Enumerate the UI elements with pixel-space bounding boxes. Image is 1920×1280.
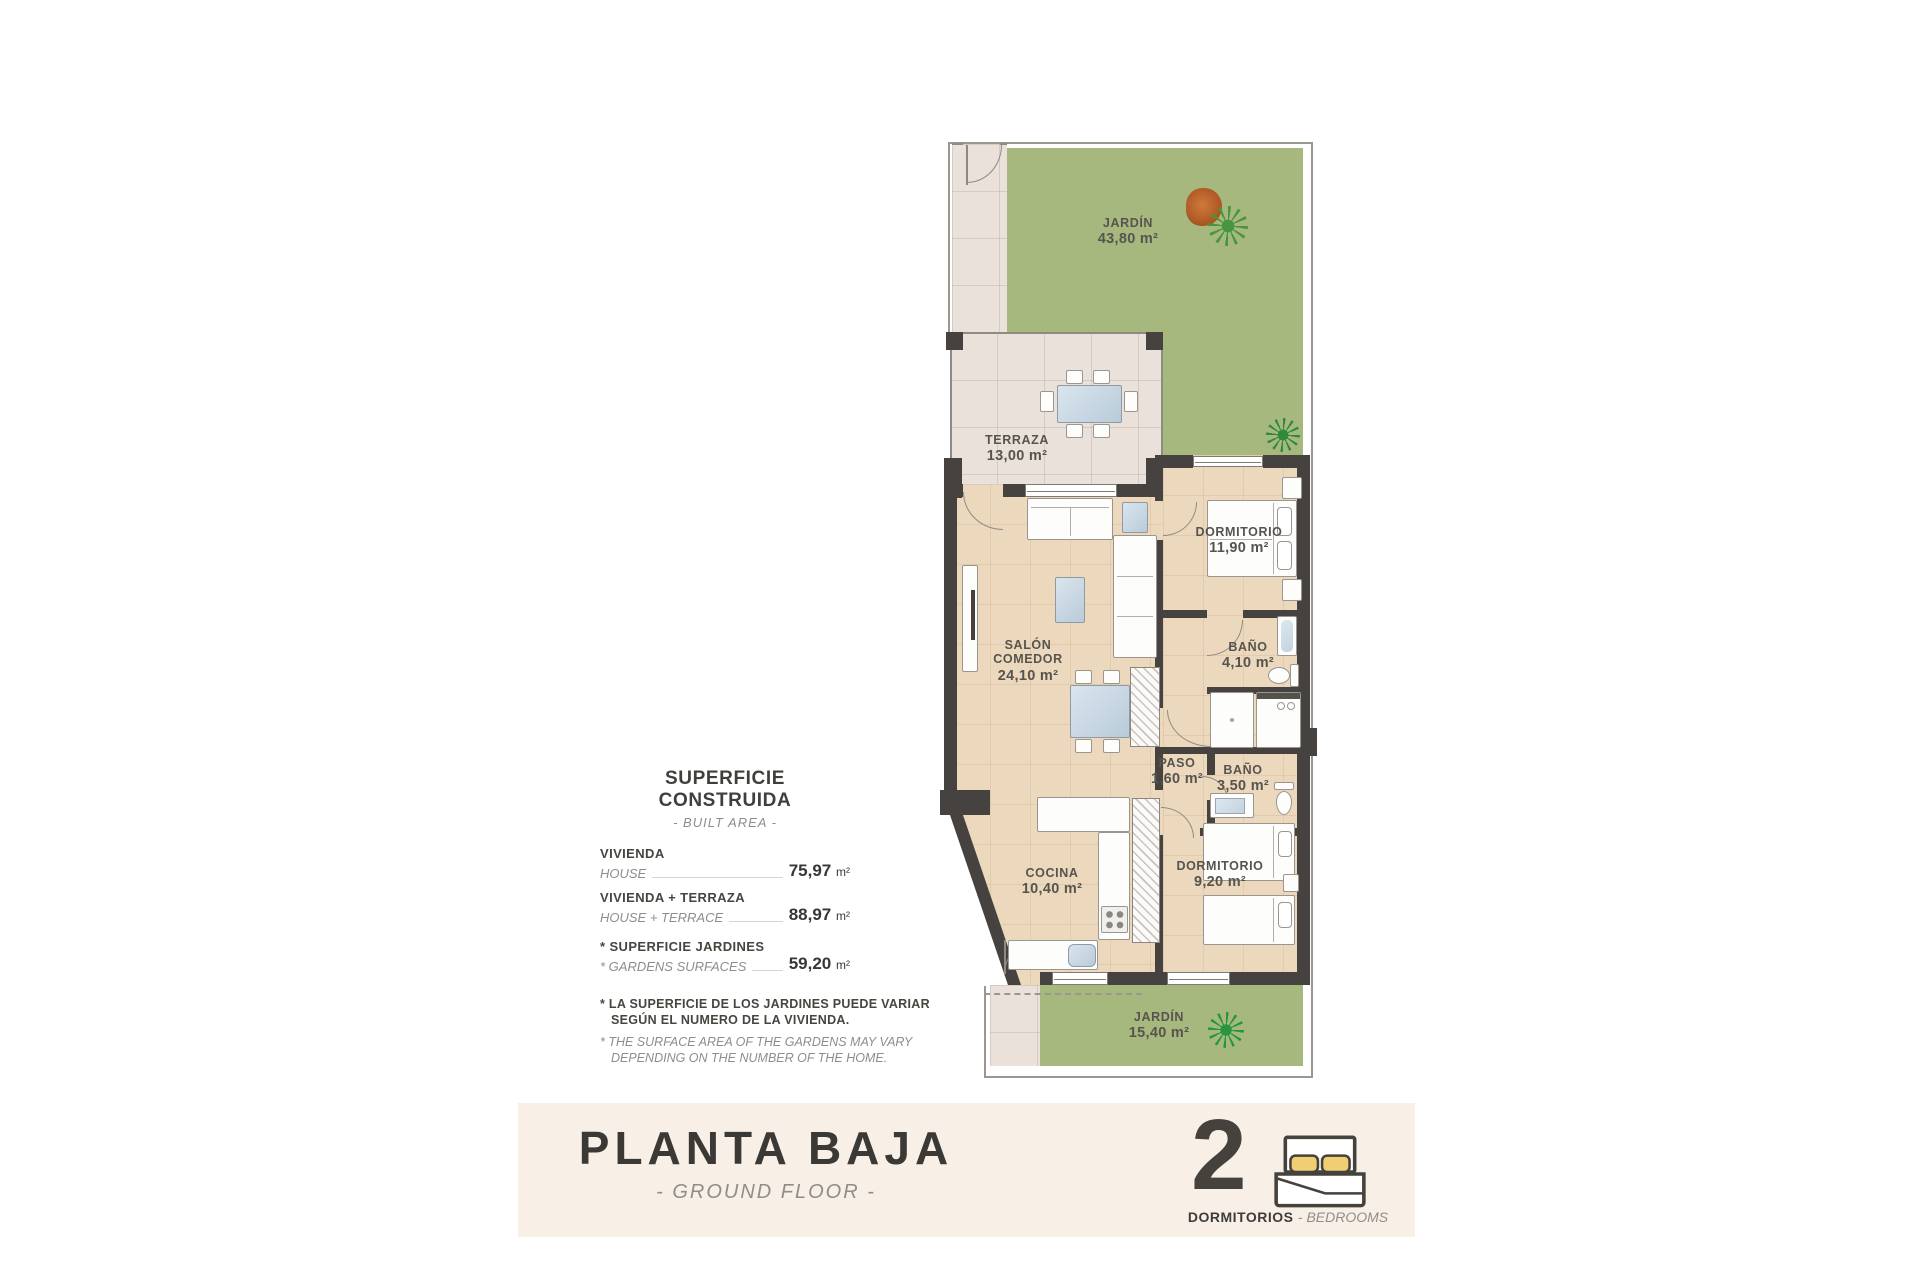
panel-title: SUPERFICIE CONSTRUIDA bbox=[600, 768, 850, 812]
plot-border-bottom bbox=[984, 1076, 1313, 1078]
kitchen-counter-top bbox=[1037, 797, 1130, 832]
terrace-chair bbox=[1093, 424, 1110, 438]
terrace-chair bbox=[1066, 370, 1083, 384]
terrace-parapet-top bbox=[950, 332, 1163, 334]
wall bbox=[1163, 610, 1207, 618]
coffee-table bbox=[1055, 577, 1085, 623]
terrace-chair bbox=[1040, 391, 1054, 412]
boundary-dashed-line bbox=[984, 993, 1142, 995]
label-bano-2: BAÑO 3,50 m² bbox=[1183, 763, 1303, 795]
terrace-chair bbox=[1124, 391, 1138, 412]
plot-border-left-low bbox=[984, 986, 986, 1078]
side-table bbox=[1122, 502, 1148, 533]
wall-spine bbox=[1155, 497, 1163, 501]
label-cocina: COCINA 10,40 m² bbox=[992, 866, 1112, 898]
wardrobe-kitchen-side bbox=[1132, 798, 1160, 943]
pillow bbox=[1278, 902, 1292, 928]
palm-icon bbox=[1208, 206, 1248, 246]
dining-table bbox=[1070, 685, 1130, 738]
wall-fin bbox=[940, 790, 990, 815]
surface-row-house: VIVIENDA HOUSE 75,97 m² bbox=[600, 846, 850, 881]
bed-icon bbox=[1269, 1135, 1371, 1211]
palm-icon bbox=[1266, 418, 1300, 452]
built-area-panel: SUPERFICIE CONSTRUIDA - BUILT AREA - VIV… bbox=[600, 768, 850, 983]
label-jardin-top: JARDÍN 43,80 m² bbox=[1068, 216, 1188, 248]
label-dormitorio-2: DORMITORIO 9,20 m² bbox=[1160, 859, 1280, 891]
footnotes: * LA SUPERFICIE DE LOS JARDINES PUEDE VA… bbox=[600, 996, 950, 1066]
terrace-table bbox=[1057, 385, 1122, 423]
surface-row-gardens: * SUPERFICIE JARDINES * GARDENS SURFACES… bbox=[600, 939, 850, 974]
label-bano-1: BAÑO 4,10 m² bbox=[1188, 640, 1308, 672]
floor-title: PLANTA BAJA bbox=[546, 1121, 986, 1175]
stove bbox=[1101, 906, 1128, 933]
leader-line bbox=[752, 970, 782, 971]
footnote-es: * LA SUPERFICIE DE LOS JARDINES PUEDE VA… bbox=[600, 996, 950, 1029]
chaise-sofa bbox=[1113, 535, 1157, 658]
window-bedroom-2 bbox=[1167, 972, 1230, 985]
pillow bbox=[1278, 831, 1292, 857]
walkway-patch-bottom bbox=[990, 985, 1040, 1066]
sofa bbox=[1027, 498, 1113, 540]
dining-chair bbox=[1075, 739, 1092, 753]
dining-chair bbox=[1103, 739, 1120, 753]
terrace-parapet-right bbox=[1161, 332, 1163, 456]
floor-title-block: PLANTA BAJA - GROUND FLOOR - bbox=[546, 1121, 986, 1204]
label-dormitorio-1: DORMITORIO 11,90 m² bbox=[1179, 525, 1299, 557]
wall bbox=[1003, 484, 1025, 497]
floor-subtitle: - GROUND FLOOR - bbox=[546, 1181, 986, 1204]
nightstand bbox=[1282, 477, 1302, 499]
terrace-post bbox=[946, 332, 963, 350]
wall bbox=[1040, 972, 1052, 985]
bedrooms-count: 2 bbox=[1191, 1109, 1247, 1201]
gate-wall bbox=[952, 143, 963, 145]
nightstand bbox=[1283, 874, 1299, 892]
vanity-double bbox=[1256, 692, 1301, 748]
brochure-page: JARDÍN 43,80 m² TERRAZA 13,00 m² DORMITO… bbox=[0, 0, 1920, 1280]
plot-border-left bbox=[948, 142, 950, 334]
wall bbox=[1230, 972, 1303, 985]
nightstand bbox=[1282, 579, 1302, 601]
label-terraza: TERRAZA 13,00 m² bbox=[957, 433, 1077, 465]
vanity bbox=[1210, 793, 1254, 818]
leader-line bbox=[652, 877, 782, 878]
window-kitchen bbox=[1052, 972, 1108, 985]
shower bbox=[1210, 692, 1254, 748]
wall bbox=[1117, 484, 1163, 497]
terrace-chair bbox=[1093, 370, 1110, 384]
wall-left bbox=[944, 484, 957, 815]
plot-border-right bbox=[1311, 142, 1313, 1078]
window-bedroom-1 bbox=[1193, 456, 1263, 467]
kitchen-sink bbox=[1068, 944, 1096, 967]
wall bbox=[1108, 972, 1163, 985]
wall bbox=[1155, 455, 1193, 468]
tv bbox=[971, 590, 975, 640]
footer: PLANTA BAJA - GROUND FLOOR - 2 DORMITORI… bbox=[518, 1103, 1415, 1237]
window-living bbox=[1025, 484, 1117, 497]
wardrobe-hall bbox=[1130, 667, 1160, 747]
label-salon: SALÓN COMEDOR 24,10 m² bbox=[968, 638, 1088, 684]
wall bbox=[1163, 747, 1303, 754]
dining-chair bbox=[1103, 670, 1120, 684]
terrace-post bbox=[1146, 332, 1163, 350]
footnote-en: * THE SURFACE AREA OF THE GARDENS MAY VA… bbox=[600, 1034, 950, 1067]
panel-subtitle: - BUILT AREA - bbox=[600, 815, 850, 830]
leader-line bbox=[729, 921, 783, 922]
surface-row-house-terrace: VIVIENDA + TERRAZA HOUSE + TERRACE 88,97… bbox=[600, 890, 850, 925]
bedrooms-badge: 2 DORMITORIOS - BEDROOMS bbox=[1173, 1109, 1403, 1229]
label-jardin-bottom: JARDÍN 15,40 m² bbox=[1099, 1010, 1219, 1042]
floor-plan: JARDÍN 43,80 m² TERRAZA 13,00 m² DORMITO… bbox=[940, 130, 1320, 1090]
bedrooms-label: DORMITORIOS - BEDROOMS bbox=[1173, 1209, 1403, 1227]
